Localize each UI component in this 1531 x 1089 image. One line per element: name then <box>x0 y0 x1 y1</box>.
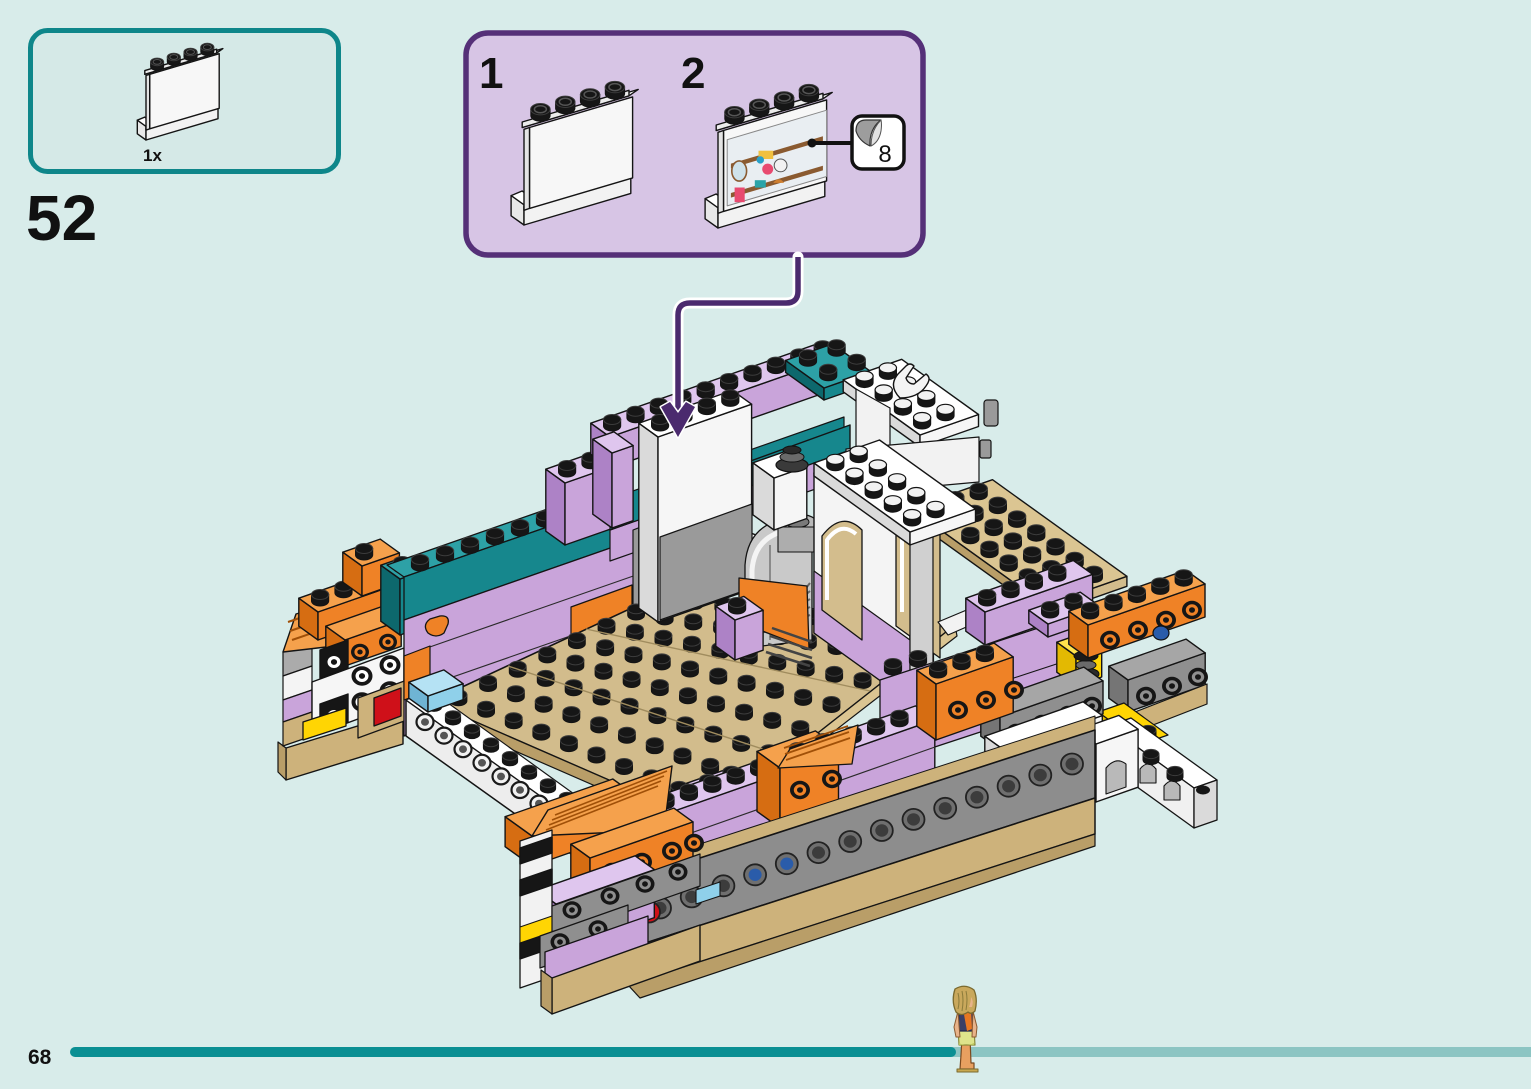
svg-text:8: 8 <box>878 141 891 168</box>
svg-text:1x: 1x <box>143 146 162 165</box>
svg-text:52: 52 <box>26 182 97 254</box>
svg-text:68: 68 <box>28 1046 52 1069</box>
svg-text:1: 1 <box>479 49 503 98</box>
svg-text:2: 2 <box>681 49 705 98</box>
